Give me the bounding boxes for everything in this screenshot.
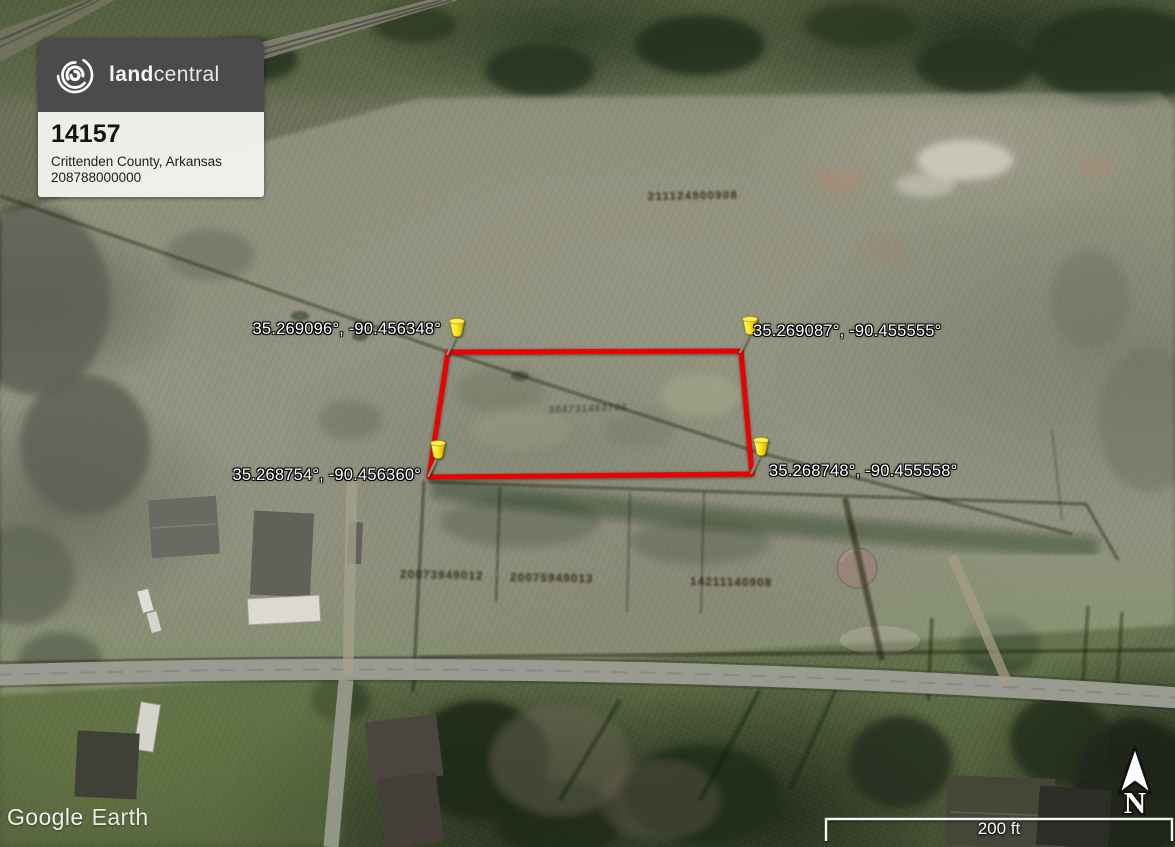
google-earth-watermark: GoogleEarth <box>7 804 149 831</box>
google-earth-viewport: 211124900908 308731403708 20073949012 20… <box>0 0 1175 847</box>
ground-label: 14211140908 <box>690 576 772 589</box>
watermark-earth: Earth <box>92 804 149 830</box>
landcentral-card-body: 14157 Crittenden County, Arkansas 208788… <box>38 112 264 197</box>
ground-label: 20073949012 <box>400 569 484 582</box>
coordinate-label-northeast: 35.269087°, -90.455555° <box>753 322 941 341</box>
property-id: 14157 <box>51 121 251 149</box>
north-label: N <box>1124 785 1146 820</box>
ground-label: 211124900908 <box>648 189 738 203</box>
coordinate-label-southeast: 35.268748°, -90.455558° <box>769 462 957 481</box>
scale-bar-label: 200 ft <box>926 819 1072 839</box>
ground-label: 20075949013 <box>510 572 594 585</box>
landcentral-wordmark: landcentral <box>109 63 220 87</box>
property-location: Crittenden County, Arkansas <box>51 154 251 170</box>
landcentral-card-header: landcentral <box>38 38 264 112</box>
coordinate-label-northwest: 35.269096°, -90.456348° <box>253 320 441 339</box>
coordinate-label-southwest: 35.268754°, -90.456360° <box>233 466 421 485</box>
wordmark-central: central <box>154 63 220 86</box>
landcentral-overlay-card: landcentral 14157 Crittenden County, Ark… <box>38 38 264 197</box>
wordmark-land: land <box>109 63 154 86</box>
property-parcel-number: 208788000000 <box>51 170 251 186</box>
landcentral-swirl-logo-icon <box>54 54 96 96</box>
watermark-google: Google <box>7 804 84 830</box>
